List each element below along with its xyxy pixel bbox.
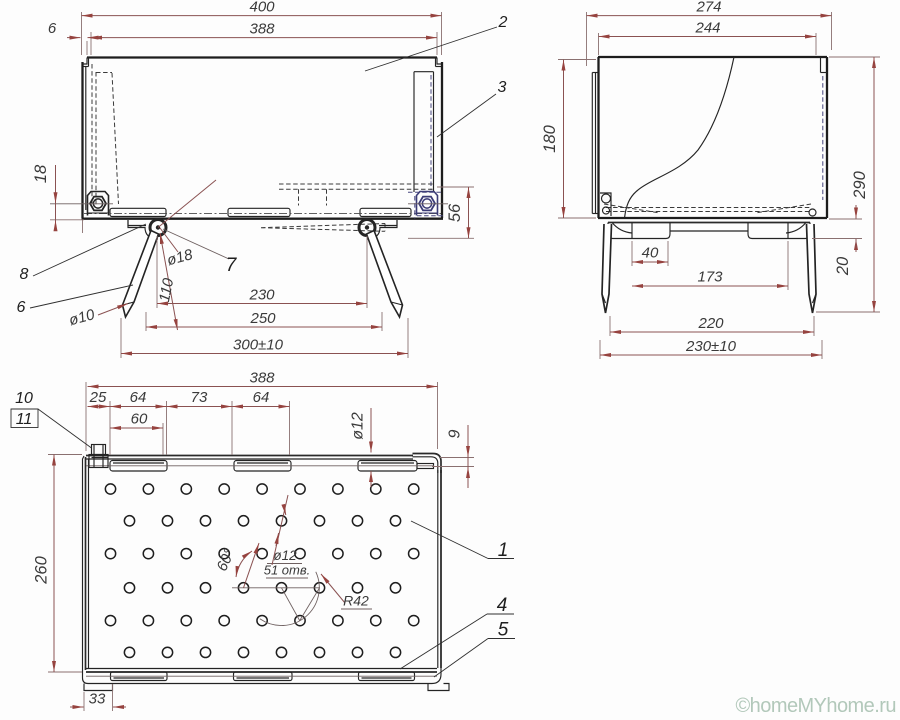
svg-text:3: 3 — [498, 79, 507, 96]
svg-text:64: 64 — [130, 389, 147, 406]
svg-text:230±10: 230±10 — [685, 338, 737, 355]
svg-text:290: 290 — [851, 170, 869, 199]
svg-text:1: 1 — [498, 540, 509, 561]
svg-text:2: 2 — [498, 14, 508, 31]
svg-text:6: 6 — [17, 299, 26, 316]
svg-text:18: 18 — [32, 164, 50, 183]
svg-text:7: 7 — [226, 255, 238, 276]
svg-text:388: 388 — [249, 370, 275, 387]
svg-text:8: 8 — [20, 266, 29, 283]
svg-text:250: 250 — [249, 310, 276, 327]
svg-text:56: 56 — [446, 203, 464, 222]
svg-text:R42: R42 — [343, 593, 369, 609]
svg-text:173: 173 — [697, 269, 723, 286]
svg-text:11: 11 — [16, 411, 33, 428]
svg-text:388: 388 — [249, 21, 275, 38]
svg-text:400: 400 — [249, 0, 275, 16]
svg-text:73: 73 — [191, 389, 208, 406]
svg-text:60: 60 — [131, 411, 148, 428]
svg-text:40: 40 — [642, 245, 659, 262]
svg-text:33: 33 — [89, 691, 106, 708]
svg-text:25: 25 — [89, 389, 107, 406]
svg-text:244: 244 — [694, 20, 720, 37]
svg-text:220: 220 — [697, 315, 724, 332]
svg-text:260: 260 — [33, 555, 51, 584]
svg-text:51 отв.: 51 отв. — [264, 563, 311, 578]
svg-text:6: 6 — [48, 20, 57, 37]
svg-text:5: 5 — [498, 620, 509, 641]
svg-text:ø12: ø12 — [273, 548, 297, 563]
svg-text:ø12: ø12 — [350, 412, 367, 440]
svg-text:10: 10 — [15, 390, 33, 407]
svg-text:230: 230 — [248, 287, 275, 304]
svg-text:274: 274 — [695, 0, 721, 16]
svg-text:300±10: 300±10 — [233, 337, 284, 354]
svg-text:9: 9 — [447, 429, 464, 438]
svg-text:20: 20 — [834, 256, 852, 276]
svg-text:©homeMYhome.ru: ©homeMYhome.ru — [736, 695, 896, 717]
svg-text:4: 4 — [497, 595, 508, 616]
svg-text:64: 64 — [253, 389, 270, 406]
svg-text:180: 180 — [541, 124, 559, 152]
